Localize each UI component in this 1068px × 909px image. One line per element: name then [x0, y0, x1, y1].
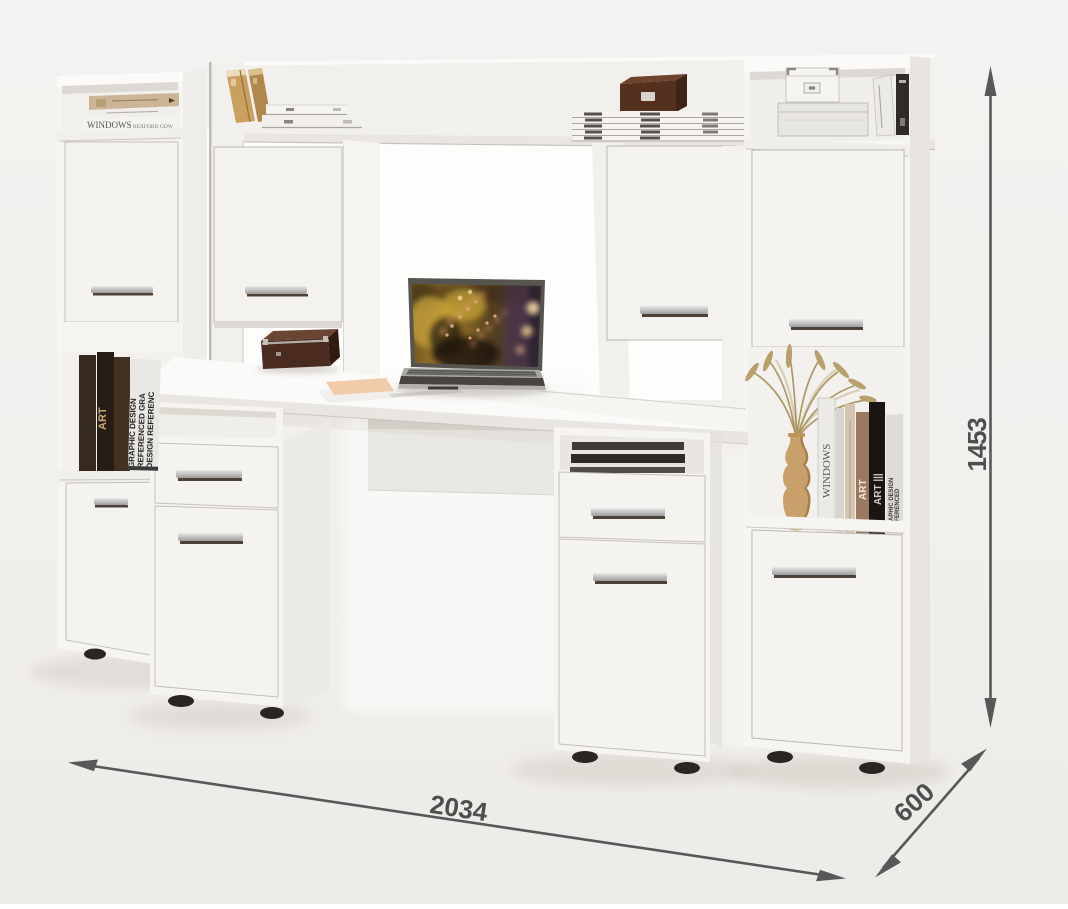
svg-text:ART: ART	[97, 407, 109, 430]
svg-text:WINDOWS: WINDOWS	[821, 444, 833, 498]
svg-text:ART: ART	[858, 479, 869, 500]
svg-text:ART |||: ART |||	[873, 473, 884, 505]
svg-text:1453: 1453	[962, 418, 992, 472]
